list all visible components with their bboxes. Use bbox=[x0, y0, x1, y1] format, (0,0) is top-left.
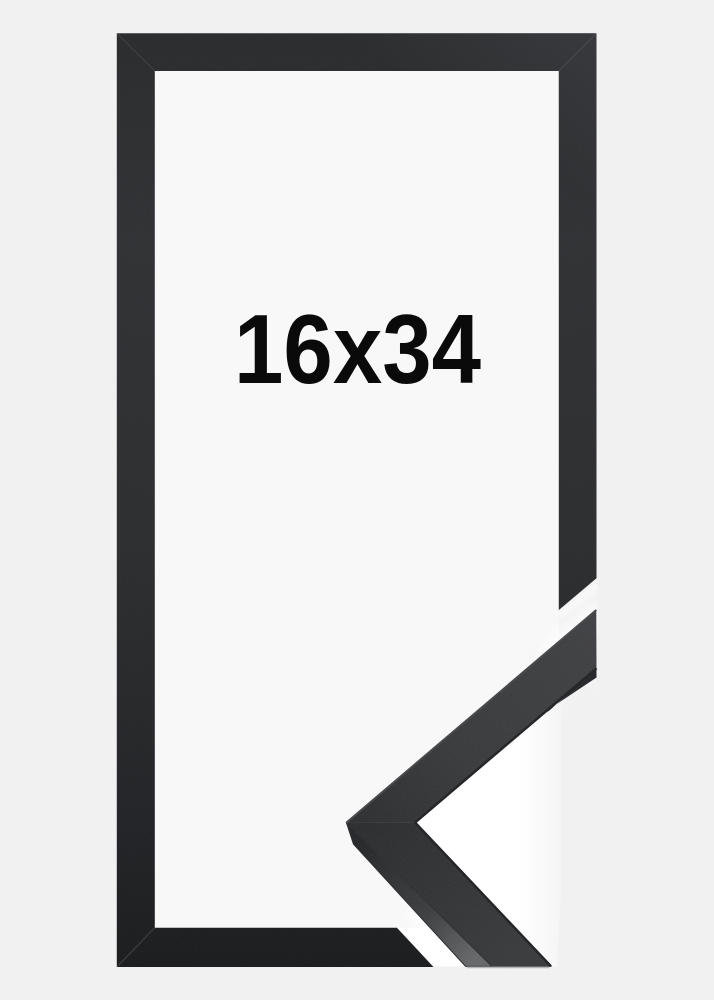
svg-text:16x34: 16x34 bbox=[234, 294, 481, 404]
